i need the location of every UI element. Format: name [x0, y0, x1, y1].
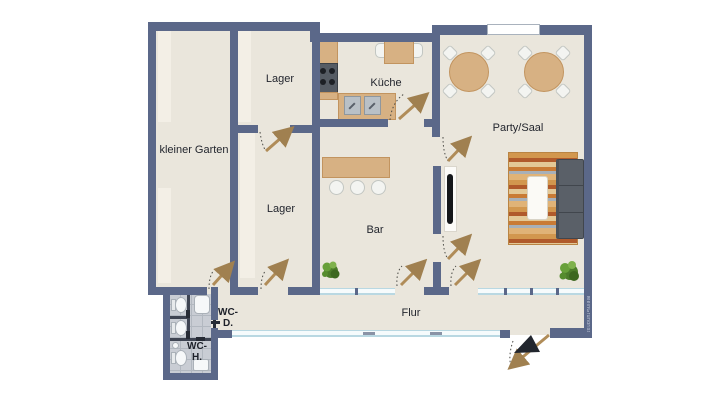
- room-label-lager-bottom: Lager: [267, 203, 295, 215]
- window-post: [530, 288, 533, 295]
- wall: [312, 22, 320, 295]
- window-post: [355, 288, 358, 295]
- burner-icon: [329, 68, 335, 74]
- round-table-icon: [449, 52, 489, 92]
- window-post: [556, 288, 559, 295]
- wall: [584, 25, 592, 338]
- wall: [500, 330, 510, 338]
- room-label-wc-h: WC- H.: [187, 341, 207, 363]
- room-bar-floor: [314, 122, 440, 294]
- room-label-kleiner-garten: kleiner Garten: [159, 144, 228, 156]
- bar-stool-icon: [350, 180, 365, 195]
- wall: [216, 330, 232, 338]
- window-post: [504, 288, 507, 295]
- sink-icon: [364, 96, 381, 115]
- wall: [148, 287, 207, 295]
- wc-d-line2: D.: [223, 318, 233, 329]
- faucet-icon: [348, 102, 355, 109]
- wash-basin-icon: [194, 295, 210, 314]
- toilet-bowl-icon: [175, 350, 187, 366]
- wall: [312, 119, 388, 127]
- wall: [288, 287, 320, 295]
- window: [487, 24, 540, 35]
- wc-h-line1: WC-: [187, 341, 207, 352]
- wall: [230, 22, 238, 295]
- burner-icon: [329, 79, 335, 85]
- entrance-arrow-icon: [514, 335, 540, 353]
- door-marker: [186, 310, 190, 318]
- room-label-kueche: Küche: [370, 77, 401, 89]
- sofa-icon: [556, 159, 584, 239]
- wc-h-line2: H.: [192, 352, 202, 363]
- bar-counter-icon: [322, 157, 390, 178]
- window-mullion: [430, 332, 442, 335]
- bar-stool-icon: [329, 180, 344, 195]
- sink-icon: [344, 96, 361, 115]
- room-label-lager-top: Lager: [266, 73, 294, 85]
- wall: [230, 287, 243, 295]
- room-label-bar: Bar: [366, 224, 383, 236]
- room-label-wc-d: WC- D.: [218, 307, 238, 329]
- burner-icon: [320, 79, 326, 85]
- wall-shading: [158, 30, 171, 122]
- room-label-flur: Flur: [402, 307, 421, 319]
- wall: [211, 287, 218, 320]
- wc-partition-wall: [170, 316, 187, 319]
- wall: [432, 25, 487, 35]
- round-table-icon: [524, 52, 564, 92]
- watermark: MeinGrundriss: [585, 296, 590, 332]
- burner-icon: [320, 68, 326, 74]
- window-mullion: [363, 332, 375, 335]
- room-label-party-saal: Party/Saal: [493, 122, 544, 134]
- floor-plan-canvas: kleiner Garten Lager Lager Küche Bar Par…: [0, 0, 711, 400]
- wall: [424, 287, 449, 295]
- wall: [432, 25, 440, 137]
- wall-shading: [240, 133, 255, 278]
- door-marker: [186, 331, 190, 339]
- wall: [310, 33, 440, 42]
- coffee-table-icon: [527, 176, 548, 220]
- wc-d-line1: WC-: [218, 307, 238, 318]
- wall: [163, 373, 218, 380]
- toilet-icon: [171, 350, 188, 367]
- chair-icon: [413, 43, 423, 58]
- wall-shading: [238, 30, 251, 122]
- wall: [230, 125, 258, 133]
- wall: [433, 166, 441, 234]
- wall-shading: [158, 188, 171, 283]
- faucet-icon: [368, 102, 375, 109]
- wall: [243, 287, 258, 295]
- round-sink-icon: [172, 342, 179, 349]
- wall: [163, 287, 170, 380]
- wall: [148, 22, 156, 295]
- tv-icon: [447, 174, 453, 224]
- bar-stool-icon: [371, 180, 386, 195]
